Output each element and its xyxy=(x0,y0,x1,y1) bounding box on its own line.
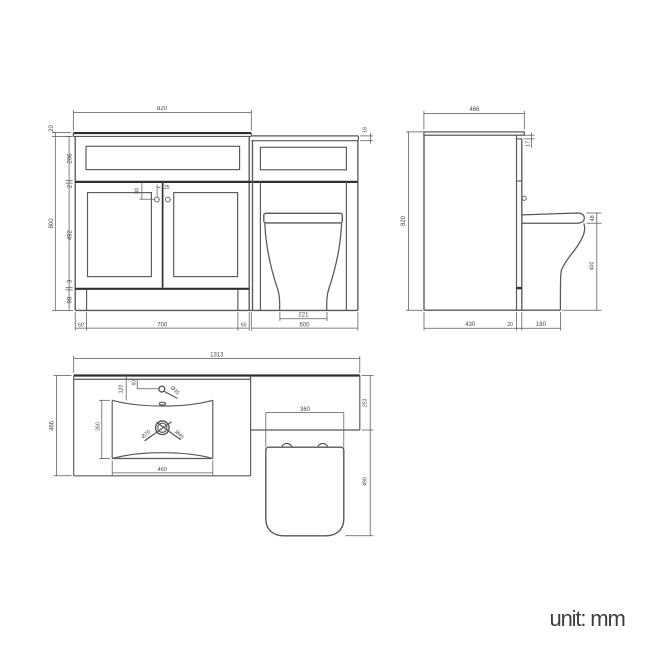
svg-text:360: 360 xyxy=(300,407,311,413)
svg-text:18: 18 xyxy=(362,127,368,133)
svg-text:492: 492 xyxy=(68,230,74,241)
svg-text:Ø45: Ø45 xyxy=(173,429,184,440)
svg-text:20: 20 xyxy=(49,125,55,132)
svg-text:48: 48 xyxy=(590,215,596,221)
svg-text:180: 180 xyxy=(536,322,547,328)
svg-text:260: 260 xyxy=(96,422,102,431)
svg-text:120: 120 xyxy=(119,385,125,394)
svg-text:700: 700 xyxy=(157,322,168,328)
svg-text:206: 206 xyxy=(68,153,74,164)
svg-text:466: 466 xyxy=(469,107,480,113)
svg-text:60: 60 xyxy=(131,380,137,386)
svg-text:800: 800 xyxy=(49,218,55,229)
svg-text:1313: 1313 xyxy=(210,352,224,358)
svg-text:2: 2 xyxy=(68,184,74,188)
svg-text:400: 400 xyxy=(590,262,596,271)
svg-text:490: 490 xyxy=(362,477,368,486)
svg-text:Ø70: Ø70 xyxy=(141,429,152,440)
svg-text:466: 466 xyxy=(49,420,55,431)
svg-text:98: 98 xyxy=(68,296,74,303)
svg-text:820: 820 xyxy=(157,106,168,112)
svg-text:253: 253 xyxy=(362,398,368,407)
svg-text:221: 221 xyxy=(298,313,309,319)
svg-text:25: 25 xyxy=(164,185,170,191)
svg-text:460: 460 xyxy=(158,467,167,473)
svg-text:600: 600 xyxy=(299,322,310,328)
svg-text:20: 20 xyxy=(507,322,513,328)
svg-text:3: 3 xyxy=(68,279,74,283)
svg-text:60: 60 xyxy=(78,322,84,328)
svg-text:80: 80 xyxy=(135,188,141,194)
svg-text:430: 430 xyxy=(465,322,476,328)
svg-text:60: 60 xyxy=(241,322,247,328)
svg-text:17: 17 xyxy=(525,141,531,147)
svg-text:820: 820 xyxy=(401,215,407,226)
